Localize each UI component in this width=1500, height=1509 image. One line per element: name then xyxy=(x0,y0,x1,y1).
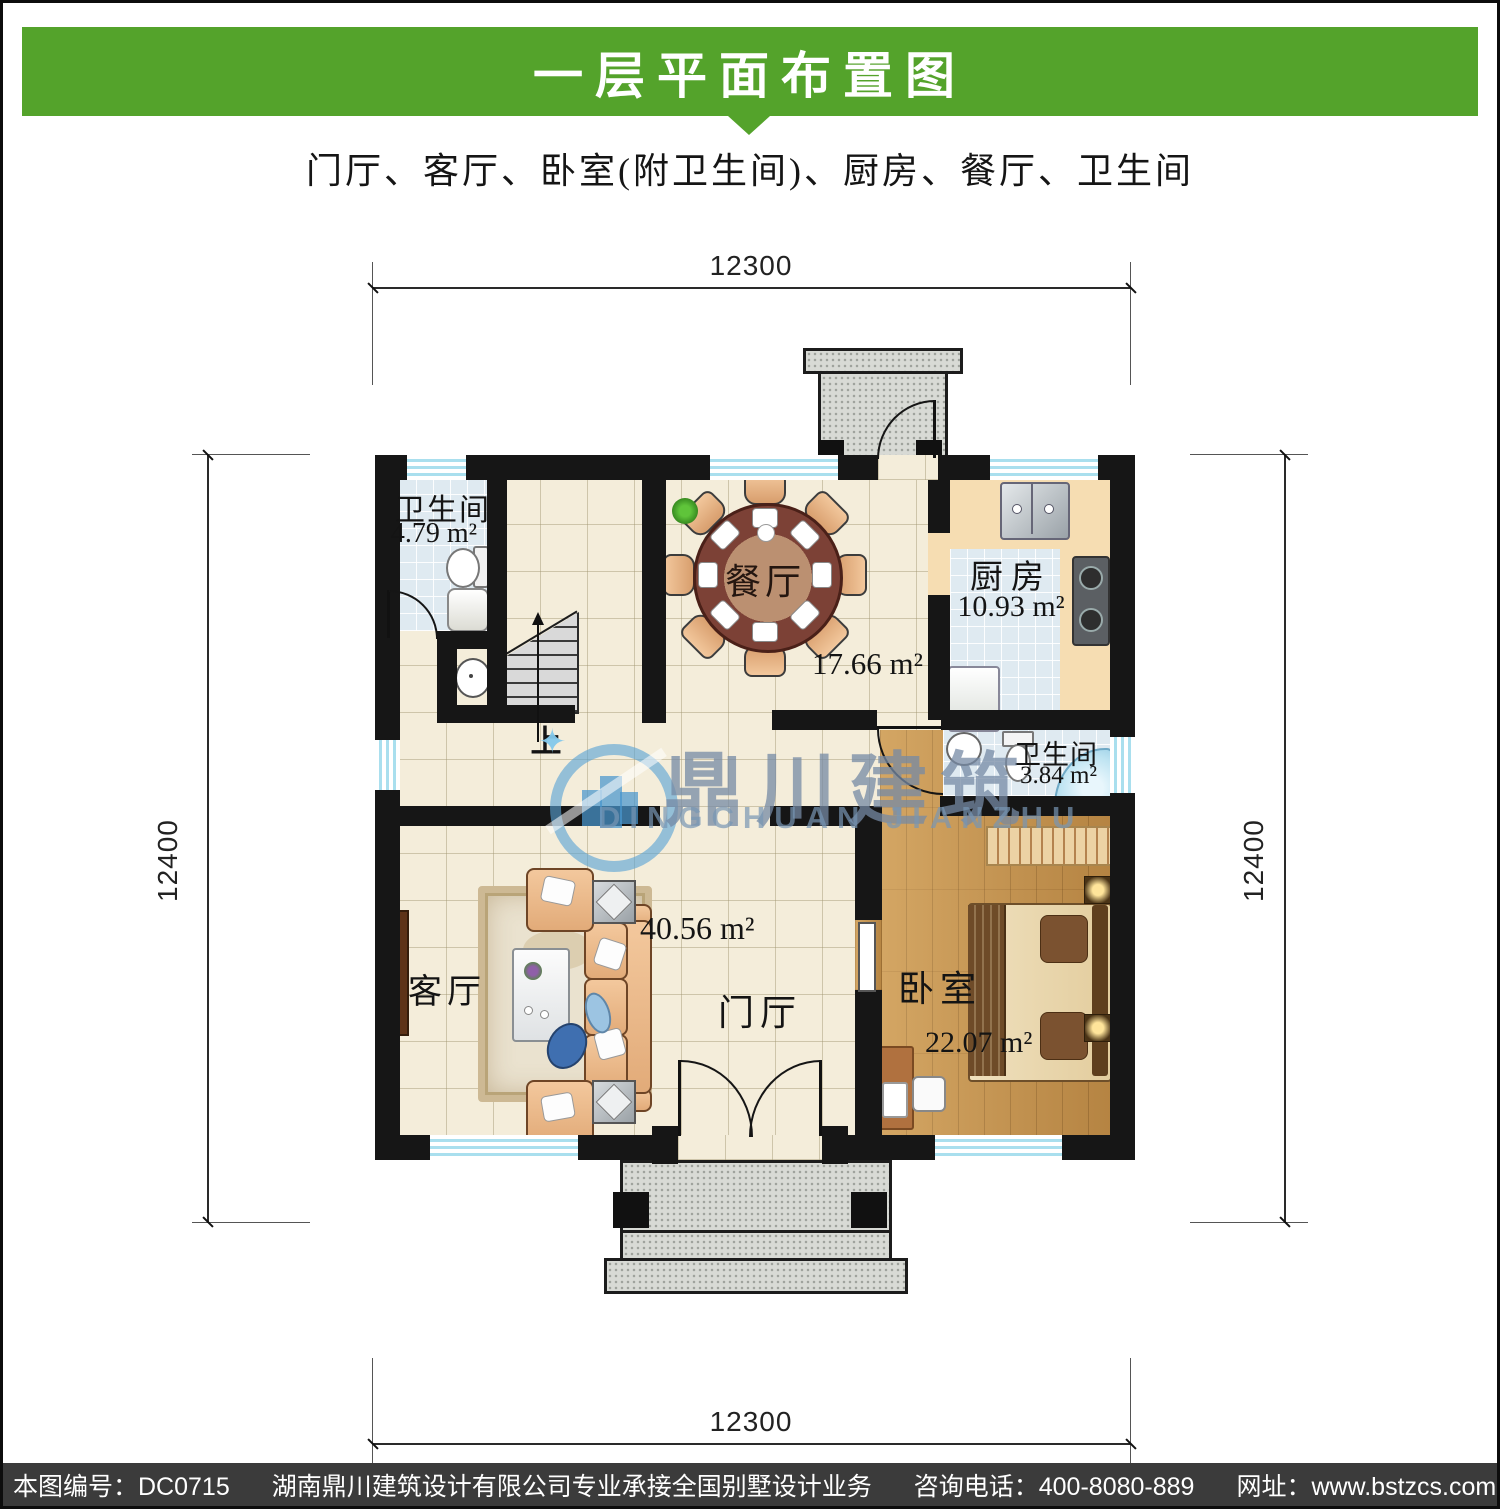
bed-headboard xyxy=(1092,905,1108,1076)
plate xyxy=(752,622,778,642)
window-right-bath2 xyxy=(1110,737,1135,793)
bedroom-door-leaf xyxy=(858,922,876,992)
wall-bedroom-left-upper xyxy=(855,806,882,920)
dining-label: 餐厅 xyxy=(715,553,815,605)
wall-bath2-bottom xyxy=(940,796,1111,816)
dim-ext-line xyxy=(1190,454,1308,455)
front-door-post xyxy=(652,1126,678,1164)
wall-living-top-right xyxy=(770,806,857,826)
dining-area: 17.66 m² xyxy=(812,646,923,682)
teapot xyxy=(757,524,775,542)
window-top-dining xyxy=(710,455,838,480)
dining-chair xyxy=(663,554,695,596)
table-flowers xyxy=(524,962,542,980)
side-table-icon xyxy=(592,880,636,924)
tea-cup xyxy=(524,1006,533,1015)
dim-ext-line xyxy=(1130,262,1131,385)
banner-pointer-triangle xyxy=(728,116,770,135)
room-list-subtitle: 门厅、客厅、卧室(附卫生间)、厨房、餐厅、卫生间 xyxy=(0,142,1500,194)
sink-divider xyxy=(1031,484,1033,534)
footer-phone: 咨询电话：400-8080-889 xyxy=(914,1467,1195,1503)
dim-ext-line xyxy=(372,262,373,385)
dim-value-left: 12400 xyxy=(152,792,184,902)
floor-plan-page: 一层平面布置图 门厅、客厅、卧室(附卫生间)、厨房、餐厅、卫生间 12300 1… xyxy=(0,0,1500,1509)
title-banner: 一层平面布置图 xyxy=(22,27,1478,116)
kitchen-sink-icon xyxy=(1000,482,1070,540)
plant-icon xyxy=(672,498,698,524)
dim-ext-line xyxy=(1130,1358,1131,1470)
front-door-opening xyxy=(678,1135,822,1160)
front-porch-column xyxy=(613,1192,649,1228)
foyer-label: 门厅 xyxy=(718,984,802,1036)
page-title: 一层平面布置图 xyxy=(22,27,1478,116)
dim-ext-line xyxy=(372,1358,373,1470)
window-left-hall xyxy=(375,740,400,790)
rear-porch-lintel xyxy=(803,348,963,374)
tea-cup xyxy=(540,1010,549,1019)
window-top-bath1 xyxy=(407,455,466,480)
bedside-lamp-icon xyxy=(1084,876,1112,904)
toilet-icon xyxy=(446,548,480,588)
dim-value-top: 12300 xyxy=(691,250,811,282)
wall-bedroom-left-lower xyxy=(855,990,882,1136)
bath2-area: 3.84 m² xyxy=(1020,762,1097,790)
footer-company: 湖南鼎川建筑设计有限公司专业承接全国别墅设计业务 xyxy=(272,1467,872,1503)
basin-drain xyxy=(469,674,473,678)
footer-bar: 本图编号：DC0715 湖南鼎川建筑设计有限公司专业承接全国别墅设计业务 咨询电… xyxy=(3,1463,1500,1506)
stair-arrow-head xyxy=(532,612,544,625)
wall-hall-vestibule xyxy=(772,710,877,730)
living-label: 客厅 xyxy=(408,964,486,1013)
side-table-icon xyxy=(592,1080,636,1124)
dim-ext-line xyxy=(1190,1222,1308,1223)
stair-up-label: 上 xyxy=(526,716,566,761)
front-porch-step xyxy=(604,1258,908,1294)
dim-value-bottom: 12300 xyxy=(691,1406,811,1438)
sink-drain xyxy=(1044,504,1054,514)
dim-line-left xyxy=(207,455,209,1223)
bedside-lamp-icon xyxy=(1084,1014,1112,1042)
monitor-icon xyxy=(882,1082,908,1118)
kitchen-door-opening xyxy=(928,533,950,595)
bedroom-area: 22.07 m² xyxy=(925,1026,1032,1060)
wardrobe-icon xyxy=(986,826,1112,866)
wall-living-top-left xyxy=(375,806,660,826)
throw-pillow xyxy=(540,1091,576,1122)
wall-exterior-right xyxy=(1110,455,1135,1160)
dim-value-right: 12400 xyxy=(1238,792,1270,902)
sink-drain xyxy=(1012,504,1022,514)
front-door-post xyxy=(822,1126,848,1164)
dim-line-top xyxy=(373,287,1131,289)
dim-line-bottom xyxy=(373,1443,1131,1445)
plate xyxy=(812,562,832,588)
wall-kitchen-bottom xyxy=(941,710,1135,730)
front-porch-column xyxy=(851,1192,887,1228)
pillow-icon xyxy=(1040,1012,1088,1060)
foyer-area: 40.56 m² xyxy=(640,910,754,947)
dim-line-right xyxy=(1284,455,1286,1223)
bedroom-label: 卧室 xyxy=(898,960,982,1012)
window-top-kitchen xyxy=(990,455,1098,480)
window-bottom-bedroom xyxy=(935,1135,1062,1160)
desk-chair-icon xyxy=(912,1076,946,1112)
stove-burner xyxy=(1079,566,1103,590)
wall-dining-left xyxy=(642,455,666,723)
pillow-icon xyxy=(1040,915,1088,963)
kitchen-area: 10.93 m² xyxy=(946,590,1076,624)
bath1-area: 4.79 m² xyxy=(388,518,480,550)
stove-burner xyxy=(1079,608,1103,632)
footer-plan-number: 本图编号：DC0715 xyxy=(13,1467,230,1503)
window-bottom-living xyxy=(430,1135,578,1160)
wash-basin-icon xyxy=(455,658,491,698)
washing-machine-icon xyxy=(447,588,489,632)
wash-basin-icon xyxy=(946,732,982,766)
footer-website: 网址：www.bstzcs.com xyxy=(1236,1467,1496,1503)
